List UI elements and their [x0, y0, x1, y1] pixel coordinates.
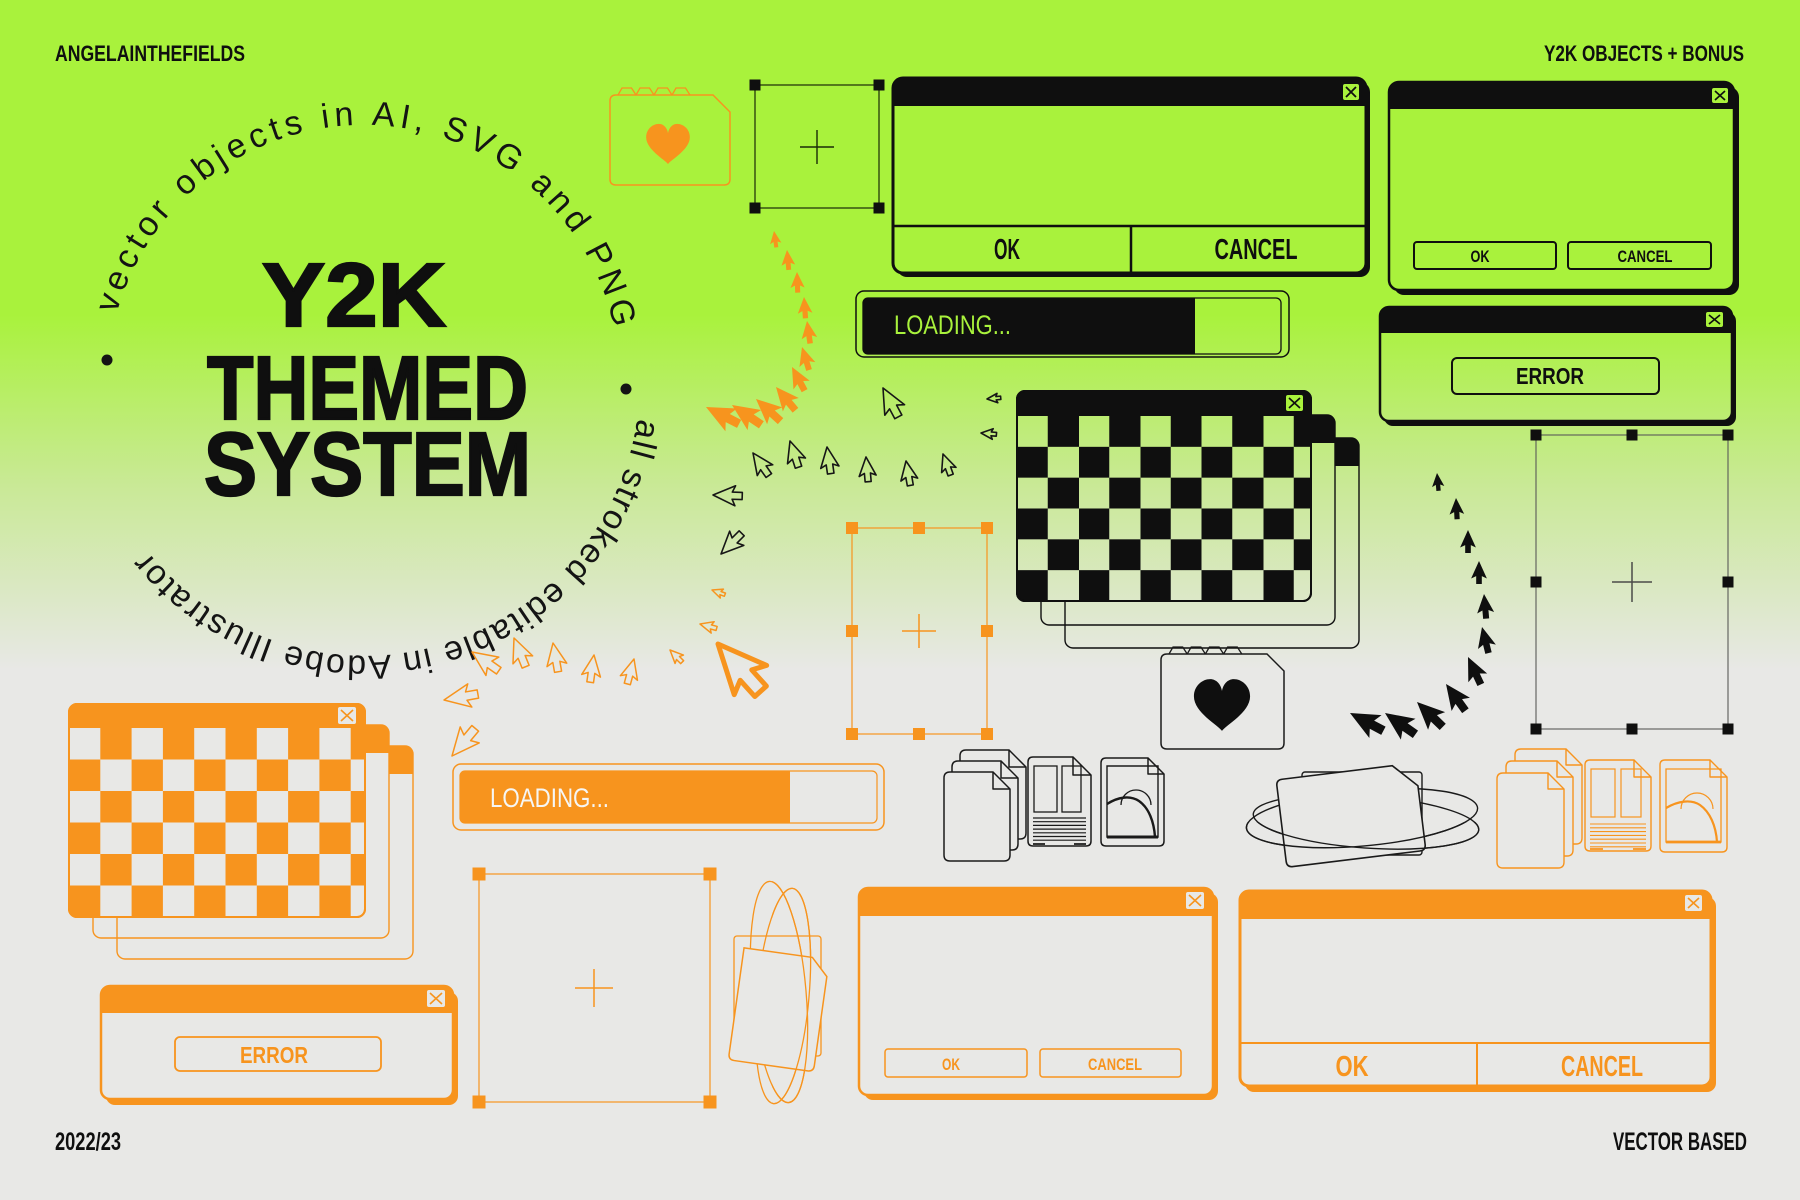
- svg-text:OK: OK: [942, 1055, 961, 1074]
- svg-text:OK: OK: [1336, 1051, 1369, 1083]
- svg-text:CANCEL: CANCEL: [1215, 234, 1298, 266]
- svg-text:LOADING...: LOADING...: [894, 310, 1011, 340]
- svg-text:OK: OK: [1471, 247, 1491, 266]
- svg-text:Y2K OBJECTS + BONUS: Y2K OBJECTS + BONUS: [1544, 41, 1744, 66]
- svg-text:CANCEL: CANCEL: [1561, 1051, 1643, 1083]
- svg-text:LOADING...: LOADING...: [490, 783, 609, 813]
- svg-text:SYSTEM: SYSTEM: [204, 415, 531, 515]
- svg-text:CANCEL: CANCEL: [1618, 247, 1673, 266]
- svg-text:VECTOR BASED: VECTOR BASED: [1613, 1128, 1747, 1156]
- svg-text:ANGELAINTHEFIELDS: ANGELAINTHEFIELDS: [55, 41, 245, 66]
- svg-text:Y2K: Y2K: [262, 246, 446, 346]
- svg-text:ERROR: ERROR: [240, 1042, 308, 1068]
- svg-text:ERROR: ERROR: [1516, 363, 1584, 389]
- svg-text:OK: OK: [994, 234, 1020, 266]
- svg-text:CANCEL: CANCEL: [1088, 1055, 1142, 1074]
- svg-text:2022/23: 2022/23: [55, 1128, 121, 1156]
